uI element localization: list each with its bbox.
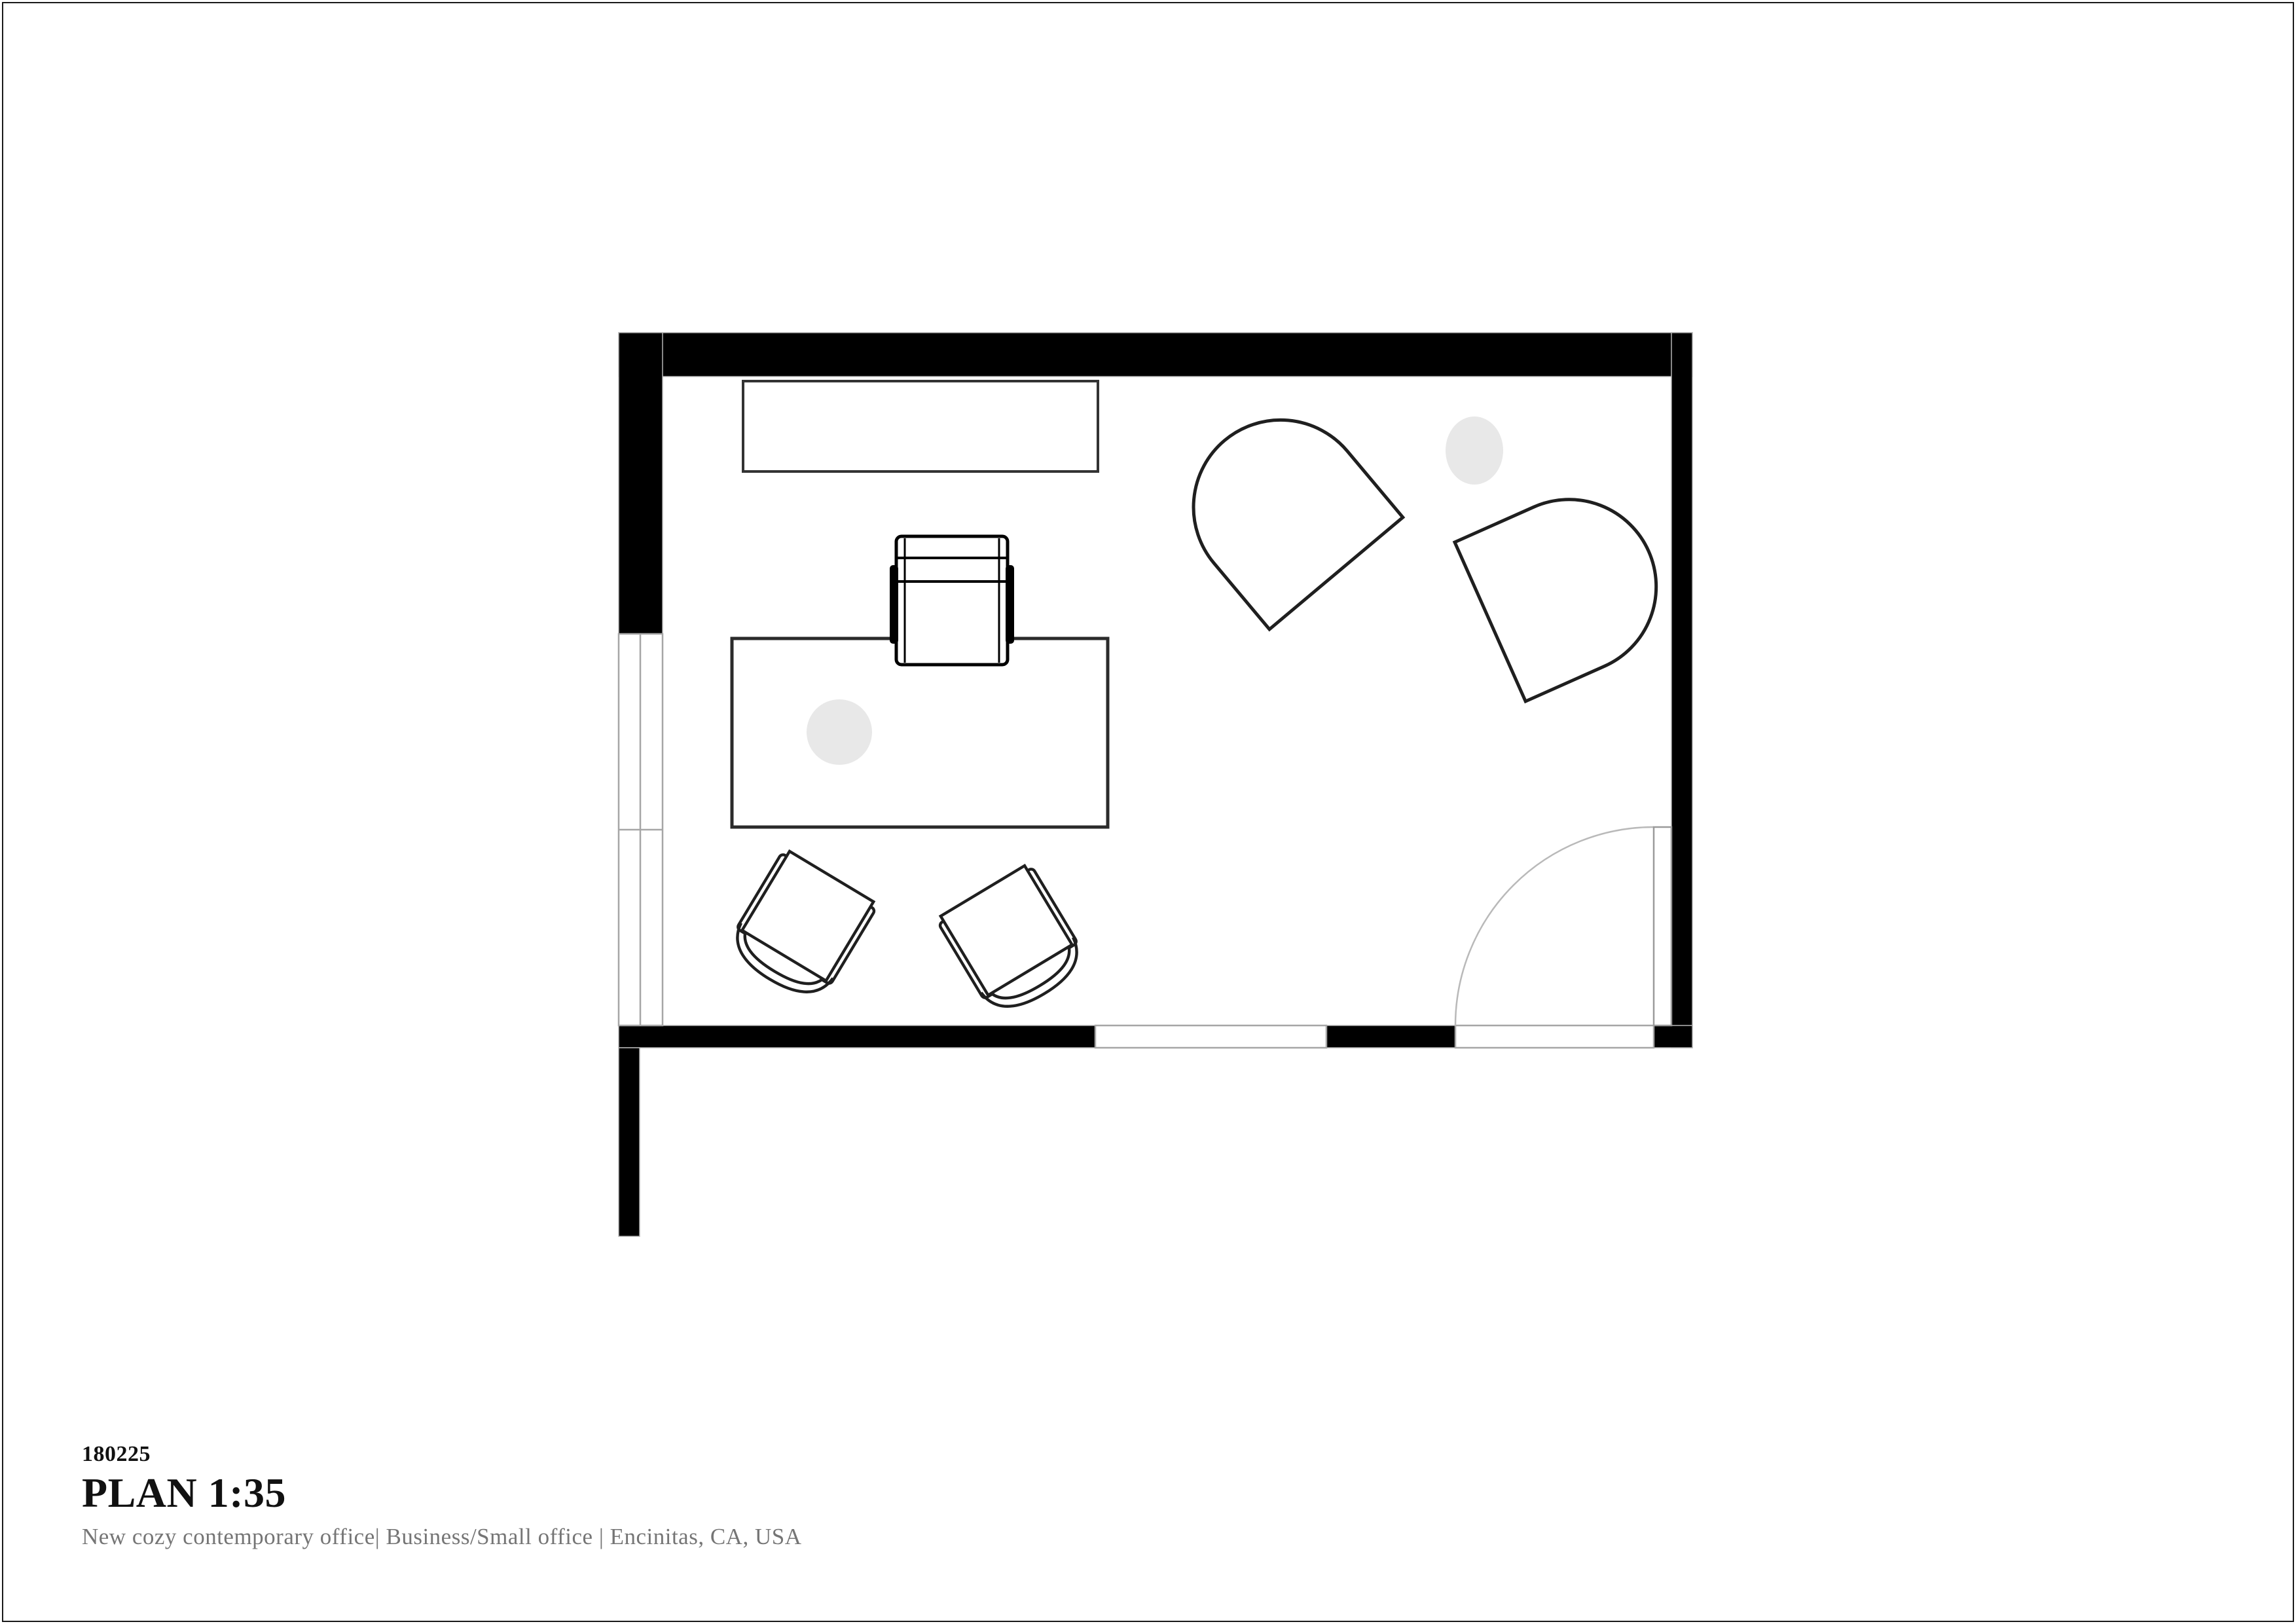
plan-title: PLAN 1:35 xyxy=(82,1472,801,1514)
wall-top xyxy=(619,333,1692,377)
door-swing-arc xyxy=(1455,827,1654,1025)
wall-right xyxy=(1671,333,1692,1048)
title-block: 180225 PLAN 1:35 New cozy contemporary o… xyxy=(82,1442,801,1550)
window-bottom xyxy=(1095,1025,1326,1048)
floor-plant xyxy=(1446,416,1503,485)
wall-bottom-left-segment xyxy=(619,1025,1095,1048)
wall-left-upper xyxy=(619,333,663,634)
lounge-armchair-left xyxy=(1158,384,1403,629)
office-chair-armrest-right xyxy=(1006,565,1014,644)
plan-subtitle: New cozy contemporary office| Business/S… xyxy=(82,1524,801,1550)
wall-bottom-mid-segment xyxy=(1326,1025,1455,1048)
lounge-armchair-right xyxy=(1455,471,1684,701)
wall-bottom-right-segment xyxy=(1654,1025,1692,1048)
floor-plan-drawing xyxy=(0,0,2296,1624)
desk-plant xyxy=(807,699,872,765)
project-number: 180225 xyxy=(82,1442,801,1467)
desk xyxy=(732,638,1108,827)
door-threshold xyxy=(1455,1025,1654,1048)
visitor-chair-left xyxy=(723,848,879,1007)
door xyxy=(1455,827,1671,1048)
office-chair-frame xyxy=(896,536,1008,665)
plan-sheet: 180225 PLAN 1:35 New cozy contemporary o… xyxy=(0,0,2296,1624)
wall-extension-lower-left xyxy=(619,1048,640,1236)
credenza xyxy=(743,381,1098,471)
visitor-chair-right xyxy=(936,862,1091,1022)
office-chair-armrest-left xyxy=(890,565,898,644)
window-left-double xyxy=(619,634,663,1025)
office-chair xyxy=(890,536,1014,665)
door-leaf xyxy=(1654,827,1671,1025)
